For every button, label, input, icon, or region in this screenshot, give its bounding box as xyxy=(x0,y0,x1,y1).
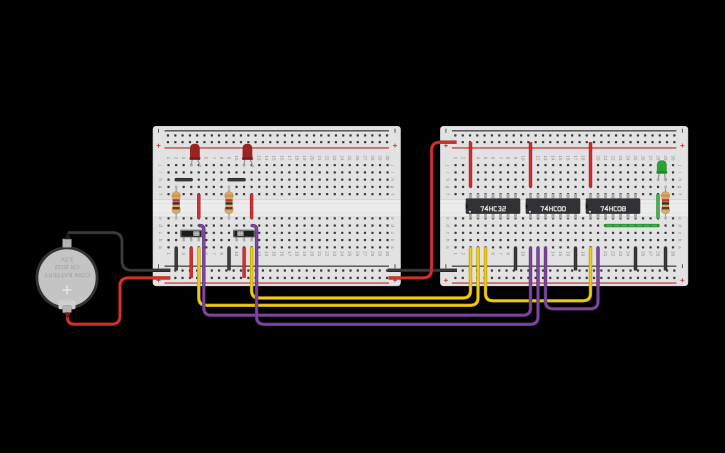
svg-text:COIN BATTERY: COIN BATTERY xyxy=(44,271,90,278)
svg-text:a: a xyxy=(389,246,394,249)
svg-text:j: j xyxy=(677,164,683,166)
svg-text:b: b xyxy=(444,239,450,242)
svg-text:1: 1 xyxy=(166,252,171,255)
svg-text:e: e xyxy=(157,217,162,220)
svg-text:g: g xyxy=(677,186,682,189)
svg-text:27: 27 xyxy=(648,251,653,257)
svg-text:1: 1 xyxy=(453,252,458,255)
svg-text:23: 23 xyxy=(618,155,623,161)
svg-text:26: 26 xyxy=(355,251,360,257)
svg-text:24: 24 xyxy=(625,155,630,161)
svg-text:13: 13 xyxy=(257,155,262,161)
svg-text:3: 3 xyxy=(181,157,186,160)
svg-text:d: d xyxy=(677,224,683,227)
svg-text:17: 17 xyxy=(287,251,292,257)
svg-text:d: d xyxy=(157,224,163,227)
svg-text:30: 30 xyxy=(670,155,675,161)
svg-text:8: 8 xyxy=(505,252,510,255)
svg-text:9: 9 xyxy=(226,157,231,160)
svg-text:16: 16 xyxy=(279,251,284,257)
svg-text:d: d xyxy=(389,224,395,227)
svg-text:25: 25 xyxy=(347,155,352,161)
svg-text:e: e xyxy=(444,217,449,220)
svg-text:i: i xyxy=(157,172,163,173)
svg-text:3.0V: 3.0V xyxy=(60,255,73,262)
svg-text:22: 22 xyxy=(325,251,330,257)
svg-text:26: 26 xyxy=(640,155,645,161)
svg-text:g: g xyxy=(157,186,162,189)
svg-text:27: 27 xyxy=(362,155,367,161)
svg-text:18: 18 xyxy=(294,155,299,161)
svg-text:h: h xyxy=(444,178,450,181)
svg-text:9: 9 xyxy=(513,157,518,160)
svg-text:2: 2 xyxy=(460,157,465,160)
svg-text:21: 21 xyxy=(603,251,608,257)
svg-text:a: a xyxy=(677,246,682,249)
svg-text:15: 15 xyxy=(558,155,563,161)
svg-text:19: 19 xyxy=(302,251,307,257)
svg-text:22: 22 xyxy=(325,155,330,161)
svg-text:10: 10 xyxy=(520,155,525,161)
svg-text:j: j xyxy=(389,164,395,166)
svg-text:17: 17 xyxy=(287,155,292,161)
svg-text:28: 28 xyxy=(655,251,660,257)
svg-text:7: 7 xyxy=(211,252,216,255)
svg-text:d: d xyxy=(444,224,450,227)
svg-text:25: 25 xyxy=(633,155,638,161)
svg-text:1: 1 xyxy=(453,157,458,160)
svg-text:14: 14 xyxy=(264,155,269,161)
svg-text:30: 30 xyxy=(385,251,390,257)
svg-text:1: 1 xyxy=(166,157,171,160)
svg-text:13: 13 xyxy=(543,155,548,161)
svg-text:24: 24 xyxy=(340,155,345,161)
svg-text:16: 16 xyxy=(565,251,570,257)
svg-text:8: 8 xyxy=(505,157,510,160)
svg-text:16: 16 xyxy=(279,155,284,161)
svg-text:h: h xyxy=(157,178,163,181)
svg-text:15: 15 xyxy=(558,251,563,257)
svg-text:6: 6 xyxy=(204,157,209,160)
svg-text:a: a xyxy=(157,246,162,249)
svg-text:21: 21 xyxy=(317,155,322,161)
svg-text:6: 6 xyxy=(490,252,495,255)
svg-text:17: 17 xyxy=(573,155,578,161)
svg-text:j: j xyxy=(157,164,163,166)
svg-text:24: 24 xyxy=(340,251,345,257)
svg-text:i: i xyxy=(389,172,395,173)
svg-text:20: 20 xyxy=(309,251,314,257)
svg-text:e: e xyxy=(389,217,394,220)
svg-text:14: 14 xyxy=(550,251,555,257)
svg-text:a: a xyxy=(444,246,449,249)
svg-text:i: i xyxy=(444,172,450,173)
svg-text:29: 29 xyxy=(377,251,382,257)
svg-text:30: 30 xyxy=(385,155,390,161)
svg-text:CR 2032: CR 2032 xyxy=(54,263,80,270)
svg-text:b: b xyxy=(677,239,683,242)
svg-text:7: 7 xyxy=(211,157,216,160)
svg-text:28: 28 xyxy=(655,155,660,161)
svg-text:8: 8 xyxy=(219,157,224,160)
svg-text:18: 18 xyxy=(580,155,585,161)
svg-text:20: 20 xyxy=(309,155,314,161)
svg-text:23: 23 xyxy=(332,155,337,161)
svg-text:6: 6 xyxy=(490,157,495,160)
svg-text:12: 12 xyxy=(535,155,540,161)
svg-text:27: 27 xyxy=(362,251,367,257)
svg-text:3: 3 xyxy=(181,252,186,255)
svg-text:10: 10 xyxy=(234,155,239,161)
svg-text:8: 8 xyxy=(219,252,224,255)
svg-text:10: 10 xyxy=(520,251,525,257)
svg-text:b: b xyxy=(389,239,395,242)
svg-text:g: g xyxy=(444,186,449,189)
svg-text:29: 29 xyxy=(377,155,382,161)
svg-text:24: 24 xyxy=(625,251,630,257)
svg-text:j: j xyxy=(444,164,450,166)
svg-text:e: e xyxy=(677,217,682,220)
svg-text:7: 7 xyxy=(498,252,503,255)
svg-text:18: 18 xyxy=(294,251,299,257)
svg-text:26: 26 xyxy=(640,251,645,257)
svg-text:25: 25 xyxy=(347,251,352,257)
svg-text:21: 21 xyxy=(603,155,608,161)
svg-text:2: 2 xyxy=(460,252,465,255)
svg-text:26: 26 xyxy=(355,155,360,161)
svg-text:h: h xyxy=(677,178,683,181)
svg-text:27: 27 xyxy=(648,155,653,161)
svg-text:18: 18 xyxy=(580,251,585,257)
svg-text:22: 22 xyxy=(610,155,615,161)
svg-text:28: 28 xyxy=(370,251,375,257)
svg-text:h: h xyxy=(389,178,395,181)
svg-text:20: 20 xyxy=(595,155,600,161)
svg-text:30: 30 xyxy=(670,251,675,257)
svg-text:4: 4 xyxy=(475,157,480,160)
svg-text:7: 7 xyxy=(498,157,503,160)
svg-text:5: 5 xyxy=(483,157,488,160)
svg-text:14: 14 xyxy=(264,251,269,257)
svg-text:29: 29 xyxy=(663,155,668,161)
svg-text:22: 22 xyxy=(610,251,615,257)
svg-text:15: 15 xyxy=(272,251,277,257)
svg-text:2: 2 xyxy=(174,157,179,160)
svg-text:i: i xyxy=(677,172,683,173)
svg-text:14: 14 xyxy=(550,155,555,161)
svg-text:16: 16 xyxy=(565,155,570,161)
svg-text:15: 15 xyxy=(272,155,277,161)
svg-text:b: b xyxy=(157,239,163,242)
svg-text:28: 28 xyxy=(370,155,375,161)
svg-text:g: g xyxy=(389,186,394,189)
svg-text:23: 23 xyxy=(618,251,623,257)
svg-text:10: 10 xyxy=(234,251,239,257)
svg-text:21: 21 xyxy=(317,251,322,257)
svg-text:23: 23 xyxy=(332,251,337,257)
svg-text:19: 19 xyxy=(302,155,307,161)
